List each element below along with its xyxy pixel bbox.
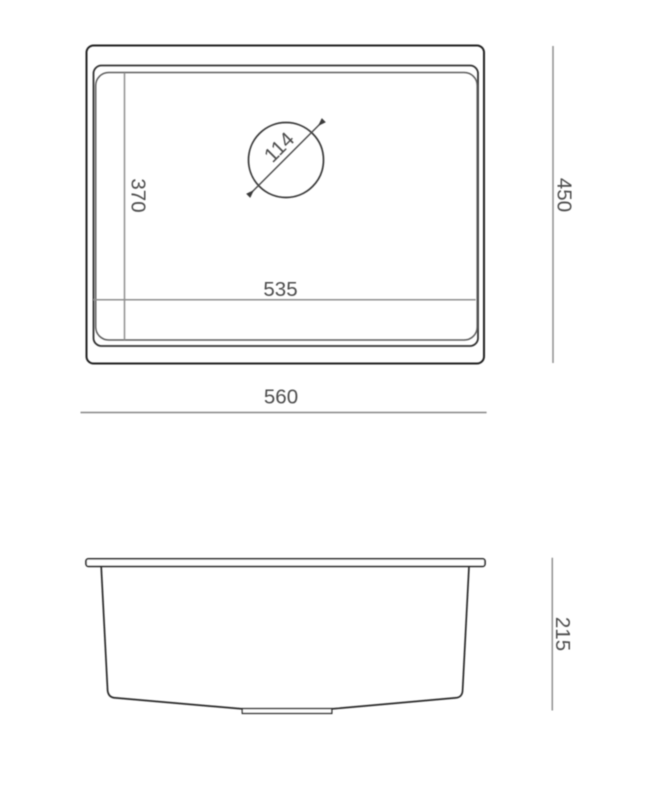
svg-text:114: 114 [260, 128, 299, 167]
svg-text:560: 560 [264, 386, 298, 409]
svg-text:370: 370 [126, 178, 149, 212]
svg-text:535: 535 [263, 278, 297, 301]
svg-text:450: 450 [553, 178, 576, 212]
svg-text:215: 215 [551, 617, 574, 651]
